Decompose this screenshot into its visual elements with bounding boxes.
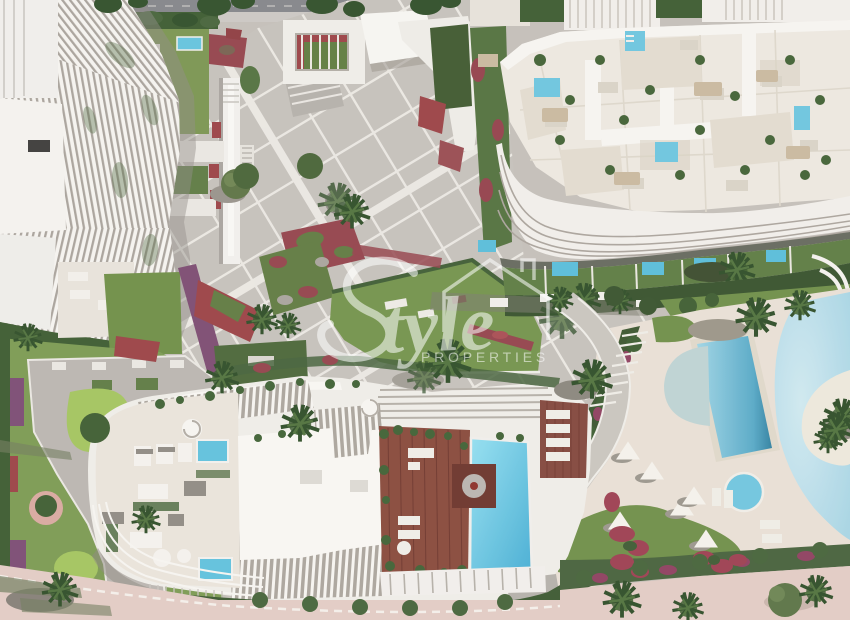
svg-text:PROPERTIES: PROPERTIES bbox=[421, 349, 549, 365]
